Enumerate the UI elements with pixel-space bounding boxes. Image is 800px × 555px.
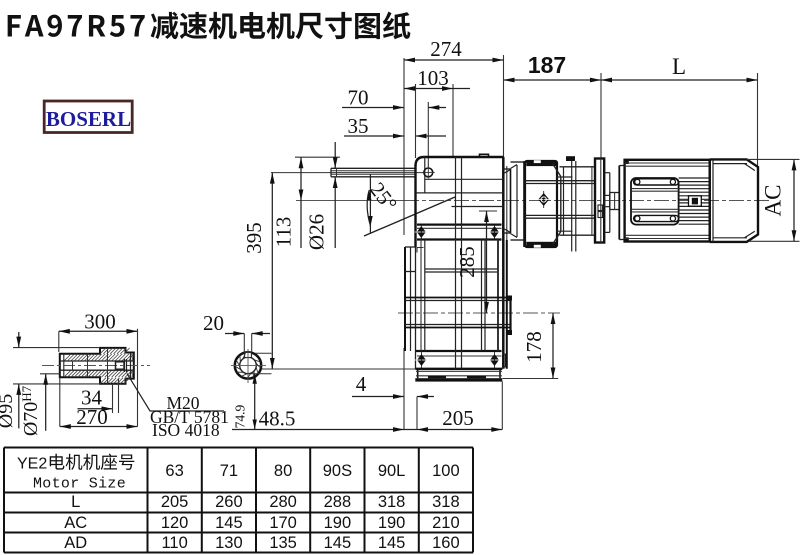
svg-text:145: 145 xyxy=(378,534,406,552)
svg-text:160: 160 xyxy=(432,534,460,552)
svg-text:103: 103 xyxy=(417,66,449,90)
svg-text:AC: AC xyxy=(761,185,786,217)
svg-text:100: 100 xyxy=(432,462,460,480)
svg-text:4: 4 xyxy=(356,372,367,396)
svg-text:205: 205 xyxy=(442,406,474,430)
svg-text:270: 270 xyxy=(76,405,108,429)
svg-text:AD: AD xyxy=(64,534,87,552)
svg-text:AC: AC xyxy=(64,514,87,532)
svg-text:Ø26: Ø26 xyxy=(305,214,329,250)
svg-text:190: 190 xyxy=(324,514,352,532)
svg-text:187: 187 xyxy=(528,52,566,78)
svg-text:L: L xyxy=(672,54,686,79)
svg-text:90L: 90L xyxy=(378,462,406,480)
svg-text:135: 135 xyxy=(269,534,297,552)
svg-text:190: 190 xyxy=(378,514,406,532)
svg-text:90S: 90S xyxy=(323,462,352,480)
svg-text:71: 71 xyxy=(220,462,238,480)
svg-text:170: 170 xyxy=(269,514,297,532)
svg-text:145: 145 xyxy=(215,514,243,532)
svg-text:300: 300 xyxy=(84,310,116,334)
svg-text:74.9: 74.9 xyxy=(233,404,248,428)
svg-text:318: 318 xyxy=(378,493,406,511)
svg-text:285: 285 xyxy=(455,246,479,278)
svg-text:288: 288 xyxy=(324,493,352,511)
svg-text:205: 205 xyxy=(161,493,189,511)
svg-text:YE2: YE2 xyxy=(17,456,47,473)
svg-text:260: 260 xyxy=(215,493,243,511)
svg-text:35: 35 xyxy=(348,114,369,138)
svg-text:Ø95: Ø95 xyxy=(0,394,17,428)
svg-text:145: 145 xyxy=(324,534,352,552)
svg-text:318: 318 xyxy=(432,493,460,511)
svg-text:80: 80 xyxy=(274,462,292,480)
svg-text:395: 395 xyxy=(242,222,266,254)
svg-text:110: 110 xyxy=(161,534,187,552)
svg-text:63: 63 xyxy=(165,462,183,480)
svg-text:210: 210 xyxy=(432,514,460,532)
svg-text:70: 70 xyxy=(348,86,369,110)
svg-text:BOSERL: BOSERL xyxy=(46,107,131,131)
svg-text:Motor Size: Motor Size xyxy=(33,476,126,493)
svg-text:280: 280 xyxy=(269,493,297,511)
svg-text:274: 274 xyxy=(430,37,462,61)
svg-text:ISO 4018: ISO 4018 xyxy=(152,420,220,440)
svg-text:130: 130 xyxy=(215,534,243,552)
svg-text:113: 113 xyxy=(272,217,296,248)
svg-text:48.5: 48.5 xyxy=(259,407,296,431)
svg-text:20: 20 xyxy=(203,311,224,335)
svg-text:120: 120 xyxy=(161,514,189,532)
svg-text:L: L xyxy=(71,493,80,511)
svg-text:178: 178 xyxy=(522,331,546,363)
